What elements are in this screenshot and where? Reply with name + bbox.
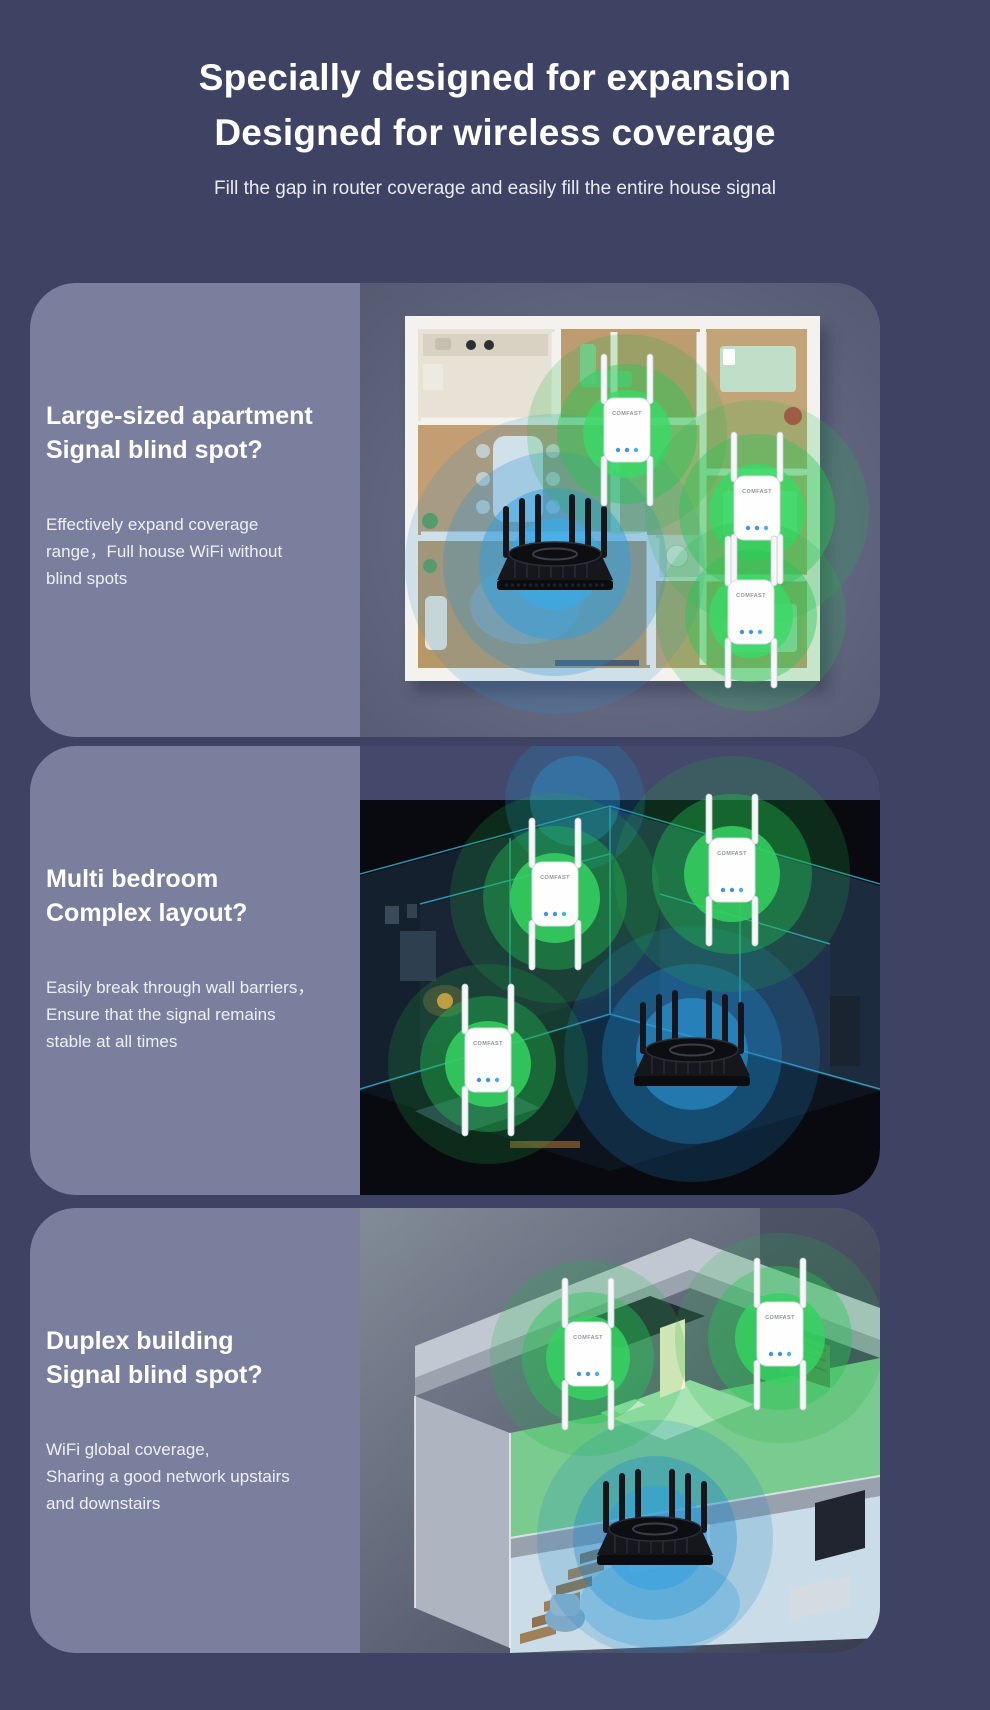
card-body: Effectively expand coverage range，Full h… [46,511,351,592]
card-title-line2: Complex layout? [46,899,247,927]
card-title-line1: Multi bedroom [46,865,218,893]
card-body-line3: and downstairs [46,1494,160,1513]
card-multi-bedroom: COMFAST [30,746,880,1195]
card-body-line2: Ensure that the signal remains [46,1005,276,1024]
card-title-line2: Signal blind spot? [46,1361,263,1389]
scene-apartment-floor-plan: COMFAST [360,283,880,737]
card-title: Multi bedroom Complex layout? [46,862,351,930]
card-title: Large-sized apartment Signal blind spot? [46,399,351,467]
card-body: Easily break through wall barriers， Ensu… [46,974,351,1055]
card-body-line2: Sharing a good network upstairs [46,1467,290,1486]
card-title-line1: Duplex building [46,1327,234,1355]
card-body-line1: Effectively expand coverage [46,515,258,534]
page: Specially designed for expansion Designe… [0,0,990,1710]
card-duplex-building: COMFAST [30,1208,880,1653]
card-title-line1: Large-sized apartment [46,402,313,430]
card-body-line2: range，Full house WiFi without [46,542,282,561]
header: Specially designed for expansion Designe… [0,50,990,201]
card-title: Duplex building Signal blind spot? [46,1324,351,1392]
scene-duplex-cutaway: COMFAST [360,1208,880,1653]
page-title-line2: Designed for wireless coverage [0,105,990,160]
card-body-line1: Easily break through wall barriers， [46,978,314,997]
card-body-line1: WiFi global coverage, [46,1440,209,1459]
page-title-line1: Specially designed for expansion [0,50,990,105]
page-subtitle: Fill the gap in router coverage and easi… [0,177,990,201]
card-body: WiFi global coverage, Sharing a good net… [46,1436,351,1517]
card-body-line3: blind spots [46,569,127,588]
card-large-apartment: COMFAST [30,283,880,737]
card-title-line2: Signal blind spot? [46,436,263,464]
scene-night-apartment-cutaway: COMFAST [360,746,880,1195]
card-body-line3: stable at all times [46,1032,177,1051]
